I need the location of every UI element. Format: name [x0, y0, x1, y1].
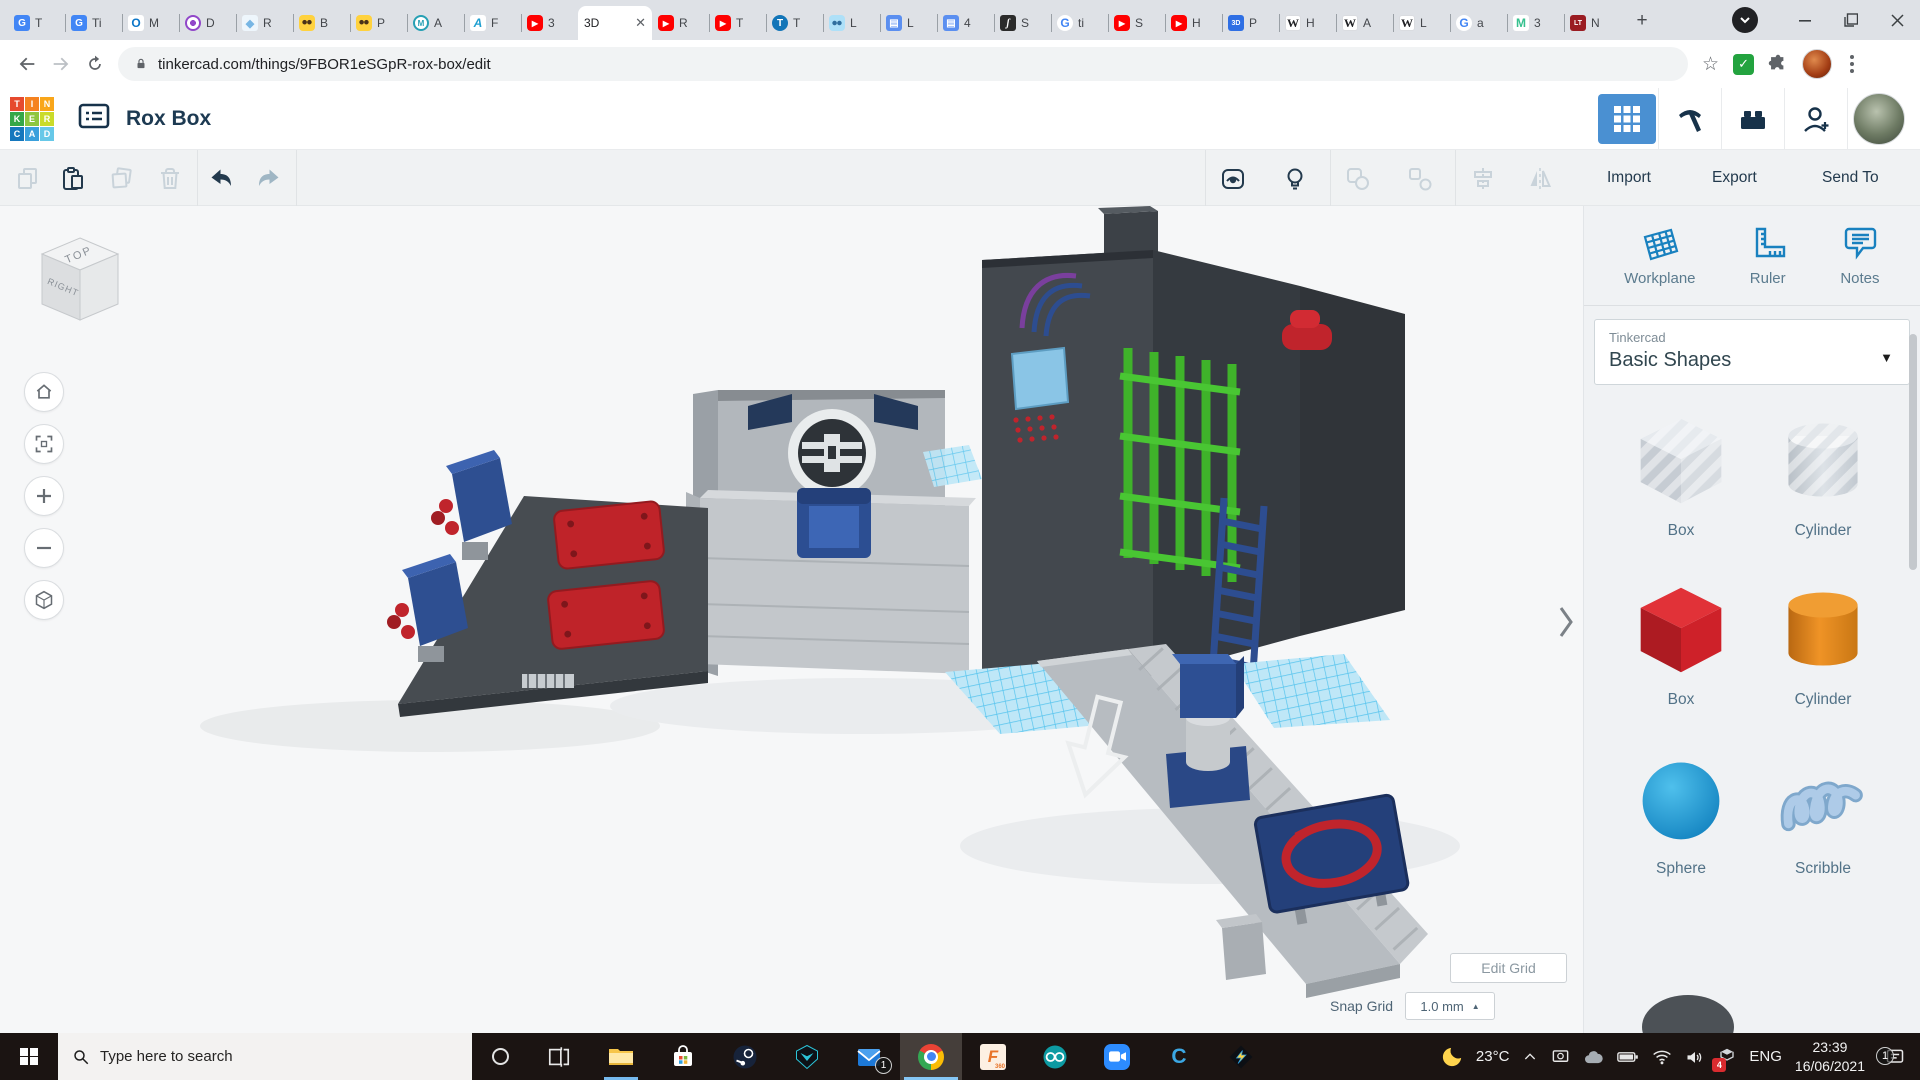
library-brand: Tinkercad: [1609, 330, 1895, 345]
wifi-icon[interactable]: [1652, 1048, 1672, 1066]
extension-check-icon[interactable]: ✓: [1733, 54, 1754, 75]
browser-tab[interactable]: M3: [1507, 6, 1564, 40]
browser-tab[interactable]: ◆R: [236, 6, 293, 40]
media-controls-button[interactable]: [1732, 7, 1758, 33]
tab-title: H: [1306, 16, 1315, 30]
favicon-bee: [299, 15, 315, 31]
browser-tab[interactable]: GT: [8, 6, 65, 40]
favicon-gtranslate: G: [71, 15, 87, 31]
cura-taskbar-icon[interactable]: C: [1148, 1033, 1210, 1080]
favicon-google: G: [1057, 15, 1073, 31]
box-striped-icon: [1633, 413, 1729, 514]
shape-label: Scribble: [1795, 860, 1851, 878]
browser-tab-strip: GTGTiOMD◆RBPMAAF▶33D✕▶R▶TTTL▤L▤4ʃSGti▶S▶…: [0, 0, 1920, 40]
cylinder-striped-icon: [1775, 413, 1871, 514]
dropbox-badge: 4: [1712, 1058, 1726, 1072]
tab-close-icon[interactable]: ✕: [635, 15, 646, 31]
notes-icon: [1840, 224, 1880, 264]
caret-down-icon: ▼: [1880, 350, 1893, 365]
search-icon: [72, 1048, 90, 1066]
shape-item-partial[interactable]: [1642, 995, 1734, 1033]
battery-icon[interactable]: [1617, 1048, 1639, 1066]
favicon-youtube: ▶: [1114, 15, 1130, 31]
tab-title: 3D: [584, 16, 599, 30]
browser-tab[interactable]: ▶H: [1165, 6, 1222, 40]
delete-button[interactable]: [154, 163, 186, 195]
avatar: [1853, 93, 1905, 145]
ruler-icon: [1748, 224, 1788, 264]
browser-tab[interactable]: 3DP: [1222, 6, 1279, 40]
favicon-3dp: 3D: [1228, 15, 1244, 31]
send-to-button[interactable]: Send To: [1822, 150, 1879, 206]
logo-letter: C: [10, 127, 24, 141]
ruler-tool[interactable]: Ruler: [1748, 224, 1788, 287]
group-button[interactable]: [1342, 163, 1374, 195]
mail-badge: 1: [875, 1057, 892, 1074]
tab-title: H: [1192, 16, 1201, 30]
weather-moon-icon[interactable]: [1441, 1046, 1463, 1068]
shapes-panel: Workplane Ruler Notes Tinkercad Basic Sh…: [1583, 206, 1920, 1033]
predator-taskbar-icon[interactable]: [776, 1033, 838, 1080]
perspective-toggle-button[interactable]: [24, 580, 64, 620]
logo-letter: R: [40, 112, 54, 126]
favicon-drift: [185, 15, 201, 31]
tab-title: P: [377, 16, 385, 30]
browser-tab[interactable]: Ga: [1450, 6, 1507, 40]
browser-tab[interactable]: D: [179, 6, 236, 40]
shape-item-scribble[interactable]: Scribble: [1752, 751, 1894, 878]
paste-button[interactable]: [57, 163, 89, 195]
tab-title: L: [1420, 16, 1427, 30]
browser-tab[interactable]: Gti: [1051, 6, 1108, 40]
browser-tab[interactable]: ▶S: [1108, 6, 1165, 40]
browser-tab[interactable]: AF: [464, 6, 521, 40]
temperature-label[interactable]: 23°C: [1476, 1048, 1510, 1065]
editor-toolbar: Import Export Send To: [0, 150, 1920, 206]
grid-icon: [1614, 106, 1640, 132]
favicon-google: G: [1456, 15, 1472, 31]
tab-title: Ti: [92, 16, 102, 30]
date-label: 16/06/2021: [1795, 1057, 1865, 1075]
fusion-taskbar-icon[interactable]: F360: [962, 1033, 1024, 1080]
screen: GTGTiOMD◆RBPMAAF▶33D✕▶R▶TTTL▤L▤4ʃSGti▶S▶…: [0, 0, 1920, 1080]
logo-letter: E: [25, 112, 39, 126]
workplane-icon: [1639, 224, 1681, 264]
language-label[interactable]: ENG: [1749, 1048, 1782, 1065]
tab-title: R: [679, 16, 688, 30]
chrome-taskbar-icon[interactable]: [900, 1033, 962, 1080]
cylinder-orange-icon: [1775, 582, 1871, 683]
zoom-in-button[interactable]: [24, 476, 64, 516]
add-person-icon: [1801, 104, 1831, 134]
tab-title: M: [149, 16, 159, 30]
tab-title: a: [1477, 16, 1484, 30]
copy-button[interactable]: [12, 163, 44, 195]
favicon-wiki: W: [1399, 15, 1415, 31]
browser-tab[interactable]: L: [823, 6, 880, 40]
ungroup-button[interactable]: [1404, 163, 1436, 195]
bookmark-star-icon[interactable]: ☆: [1702, 53, 1719, 76]
tinkercad-header: TINKERCAD Rox Box: [0, 88, 1920, 150]
redo-button[interactable]: [253, 163, 285, 195]
favicon-wiki: W: [1285, 15, 1301, 31]
forward-button[interactable]: [44, 47, 78, 81]
taskbar-search-input[interactable]: Type here to search: [58, 1033, 472, 1080]
screen-capture-icon[interactable]: [1551, 1047, 1570, 1066]
action-center-button[interactable]: 1: [1878, 1047, 1912, 1067]
favicon-youtube: ▶: [1171, 15, 1187, 31]
favicon-book: ▤: [943, 15, 959, 31]
fit-view-button[interactable]: [24, 424, 64, 464]
window-maximize-button[interactable]: [1828, 0, 1874, 40]
tab-title: S: [1021, 16, 1029, 30]
shape-label: Box: [1668, 691, 1695, 709]
tab-title: R: [263, 16, 272, 30]
favicon-autodesk: A: [470, 15, 486, 31]
shape-library-dropdown[interactable]: Tinkercad Basic Shapes ▼: [1594, 319, 1910, 385]
tab-title: A: [434, 16, 442, 30]
brick-export-button[interactable]: [1722, 88, 1784, 149]
favicon-bee: [356, 15, 372, 31]
taskbar-clock[interactable]: 23:39 16/06/2021: [1795, 1038, 1865, 1074]
time-label: 23:39: [1795, 1038, 1865, 1056]
tab-title: P: [1249, 16, 1257, 30]
shape-label: Cylinder: [1795, 522, 1852, 540]
browser-tab[interactable]: WL: [1393, 6, 1450, 40]
reload-button[interactable]: [78, 47, 112, 81]
import-button[interactable]: Import: [1607, 150, 1651, 206]
favicon-hex: M: [413, 15, 429, 31]
tab-title: 4: [964, 16, 971, 30]
browser-tab[interactable]: ▶R: [652, 6, 709, 40]
logo-letter: A: [25, 127, 39, 141]
3d-viewport[interactable]: TOP RIGHT Edit Grid Snap Grid 1.0 mm▲: [0, 206, 1583, 1033]
browser-menu-icon[interactable]: [1846, 55, 1858, 73]
tab-title: T: [736, 16, 743, 30]
undo-button[interactable]: [206, 163, 238, 195]
favicon-book: ▤: [886, 15, 902, 31]
duplicate-button[interactable]: [106, 163, 138, 195]
align-button[interactable]: [1467, 163, 1499, 195]
shape-item-sphere-blue[interactable]: Sphere: [1610, 751, 1752, 878]
back-button[interactable]: [10, 47, 44, 81]
favicon-ldd: [829, 15, 845, 31]
volume-icon[interactable]: [1685, 1048, 1705, 1066]
logo-letter: T: [10, 97, 24, 111]
browser-tab[interactable]: TT: [766, 6, 823, 40]
favicon-lt: LT: [1570, 15, 1586, 31]
scribble-icon: [1775, 751, 1871, 852]
extensions-puzzle-icon[interactable]: [1768, 54, 1788, 74]
library-title: Basic Shapes: [1609, 349, 1895, 372]
tab-title: T: [793, 16, 800, 30]
tab-title: S: [1135, 16, 1143, 30]
browser-tab[interactable]: ʃS: [994, 6, 1051, 40]
logo-letter: N: [40, 97, 54, 111]
shape-label: Box: [1668, 522, 1695, 540]
windows-taskbar: Type here to search 1F360C 23°C 4 ENG 23…: [0, 1033, 1920, 1080]
tab-title: L: [907, 16, 914, 30]
onedrive-icon[interactable]: [1583, 1048, 1604, 1066]
browser-tab[interactable]: ▶T: [709, 6, 766, 40]
snap-grid-select[interactable]: 1.0 mm▲: [1405, 992, 1495, 1020]
browser-tab[interactable]: WA: [1336, 6, 1393, 40]
logo-letter: K: [10, 112, 24, 126]
favicon-thingiverse: T: [772, 15, 788, 31]
tab-title: ti: [1078, 16, 1084, 30]
browser-tab[interactable]: OM: [122, 6, 179, 40]
account-avatar[interactable]: [1848, 88, 1910, 149]
favicon-wiki: W: [1342, 15, 1358, 31]
tab-title: N: [1591, 16, 1600, 30]
dropbox-tray-icon[interactable]: 4: [1718, 1045, 1736, 1068]
steam-taskbar-icon[interactable]: [714, 1033, 776, 1080]
tab-title: F: [491, 16, 498, 30]
favicon-js: ʃ: [1000, 15, 1016, 31]
notification-badge: 1: [1876, 1047, 1894, 1065]
logo-letter: I: [25, 97, 39, 111]
cortana-button[interactable]: [472, 1033, 528, 1080]
minecraft-export-button[interactable]: [1659, 88, 1721, 149]
arduino-taskbar-icon[interactable]: [1024, 1033, 1086, 1080]
workplane-tool[interactable]: Workplane: [1624, 224, 1695, 287]
favicon-youtube: ▶: [527, 15, 543, 31]
tab-title: A: [1363, 16, 1371, 30]
shape-item-cylinder-striped[interactable]: Cylinder: [1752, 413, 1894, 540]
window-minimize-button[interactable]: [1782, 0, 1828, 40]
view-cube[interactable]: TOP RIGHT: [30, 228, 130, 332]
mirror-button[interactable]: [1524, 163, 1556, 195]
caret-up-icon: ▲: [1472, 1002, 1480, 1011]
panel-collapse-button[interactable]: [1555, 604, 1577, 645]
logo-letter: D: [40, 127, 54, 141]
tab-title: T: [35, 16, 42, 30]
browser-tab[interactable]: WH: [1279, 6, 1336, 40]
sphere-blue-icon: [1633, 751, 1729, 852]
notes-tool[interactable]: Notes: [1840, 224, 1880, 287]
browser-tab[interactable]: 3D✕: [578, 6, 652, 40]
lego-brick-icon: [1738, 105, 1768, 133]
design-properties-button[interactable]: [78, 103, 110, 134]
browser-tab[interactable]: ▤4: [937, 6, 994, 40]
shape-item-cylinder-orange[interactable]: Cylinder: [1752, 582, 1894, 709]
model-scene[interactable]: [0, 206, 1583, 1033]
shape-label: Cylinder: [1795, 691, 1852, 709]
zoom-taskbar-icon[interactable]: [1086, 1033, 1148, 1080]
tab-title: 3: [1534, 16, 1541, 30]
favicon-mc: M: [1513, 15, 1529, 31]
browser-tab[interactable]: ▤L: [880, 6, 937, 40]
favicon-youtube: ▶: [658, 15, 674, 31]
window-close-button[interactable]: [1874, 0, 1920, 40]
panel-scrollbar[interactable]: [1909, 334, 1917, 570]
tray-expand-icon[interactable]: [1522, 1049, 1538, 1065]
tab-title: B: [320, 16, 328, 30]
edit-grid-button[interactable]: Edit Grid: [1450, 953, 1567, 983]
browser-address-bar: tinkercad.com/things/9FBOR1eSGpR-rox-box…: [0, 40, 1920, 88]
zoom-out-button[interactable]: [24, 528, 64, 568]
favicon-youtube: ▶: [715, 15, 731, 31]
box-red-icon: [1633, 582, 1729, 683]
mail-taskbar-icon[interactable]: 1: [838, 1033, 900, 1080]
tab-title: D: [206, 16, 215, 30]
blocks-view-button[interactable]: [1598, 94, 1656, 144]
export-button[interactable]: Export: [1712, 150, 1757, 206]
chevron-down-icon: [1739, 14, 1751, 26]
tinkercad-logo[interactable]: TINKERCAD: [10, 97, 54, 141]
new-tab-button[interactable]: +: [1627, 6, 1657, 36]
start-button[interactable]: [0, 1033, 58, 1080]
browser-tab[interactable]: GTi: [65, 6, 122, 40]
favicon-gtranslate: G: [14, 15, 30, 31]
design-title[interactable]: Rox Box: [126, 107, 211, 131]
home-view-button[interactable]: [24, 372, 64, 412]
browser-profile-avatar[interactable]: [1802, 49, 1832, 79]
browser-tab[interactable]: P: [350, 6, 407, 40]
show-all-button[interactable]: [1217, 163, 1249, 195]
light-view-button[interactable]: [1279, 163, 1311, 195]
browser-tab[interactable]: LTN: [1564, 6, 1621, 40]
tab-title: 3: [548, 16, 555, 30]
pickaxe-icon: [1675, 104, 1705, 134]
store-taskbar-icon[interactable]: [652, 1033, 714, 1080]
task-view-taskbar-icon[interactable]: [528, 1033, 590, 1080]
favicon-outlook: O: [128, 15, 144, 31]
shape-item-box-striped[interactable]: Box: [1610, 413, 1752, 540]
browser-tab[interactable]: MA: [407, 6, 464, 40]
browser-tab[interactable]: ▶3: [521, 6, 578, 40]
browser-tab[interactable]: B: [293, 6, 350, 40]
tab-title: L: [850, 16, 857, 30]
snap-grid-label: Snap Grid: [1330, 998, 1393, 1014]
share-user-button[interactable]: [1785, 88, 1847, 149]
windows-logo-icon: [20, 1048, 38, 1066]
shape-label: Sphere: [1656, 860, 1706, 878]
favicon-resin: ◆: [242, 15, 258, 31]
explorer-taskbar-icon[interactable]: [590, 1033, 652, 1080]
lock-icon: [134, 56, 148, 72]
url-text: tinkercad.com/things/9FBOR1eSGpR-rox-box…: [158, 56, 491, 73]
url-field[interactable]: tinkercad.com/things/9FBOR1eSGpR-rox-box…: [118, 47, 1688, 81]
shape-item-box-red[interactable]: Box: [1610, 582, 1752, 709]
voxelab-taskbar-icon[interactable]: [1210, 1033, 1272, 1080]
